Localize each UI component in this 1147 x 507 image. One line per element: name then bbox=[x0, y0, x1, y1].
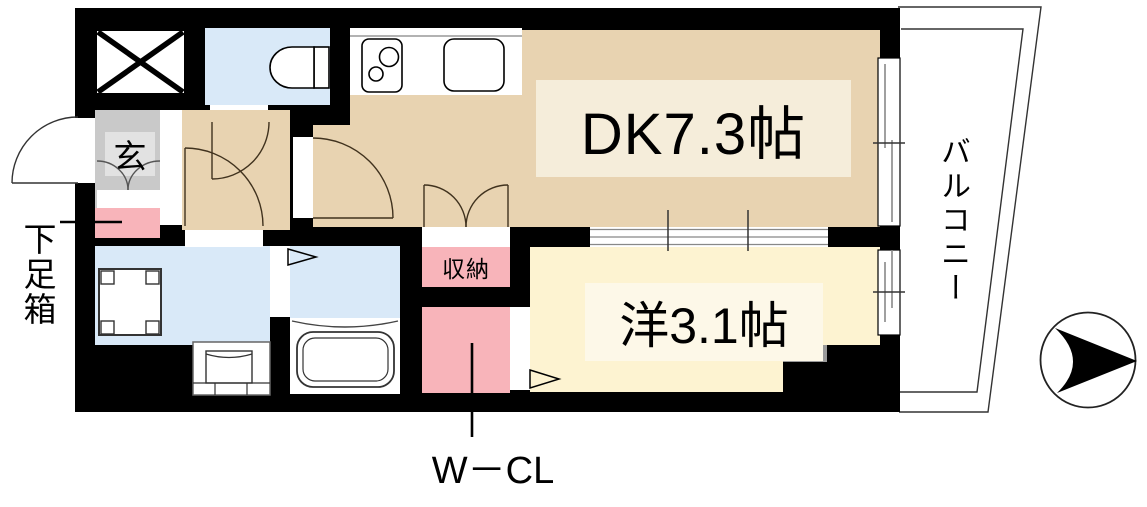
washing-machine-icon bbox=[99, 269, 161, 335]
bathroom-door-opening bbox=[270, 246, 290, 317]
hallway-floor bbox=[182, 110, 290, 230]
floor-plan-drawing bbox=[0, 0, 1147, 507]
dk-door-opening bbox=[293, 137, 313, 218]
balcony bbox=[898, 7, 1041, 412]
entry-door-opening bbox=[75, 118, 95, 183]
entrance-inner bbox=[105, 132, 155, 176]
toilet-icon bbox=[270, 47, 329, 88]
entry-door bbox=[12, 117, 95, 183]
dk-label-bg bbox=[536, 80, 851, 177]
western-balcony-window bbox=[873, 250, 905, 335]
entrance-step bbox=[97, 190, 160, 208]
kitchen-stove-icon bbox=[362, 39, 402, 92]
balcony-outer-edge bbox=[898, 7, 1041, 412]
vanity-basin-icon bbox=[193, 342, 270, 395]
entrance-frame bbox=[160, 110, 182, 225]
dk-balcony-window bbox=[873, 58, 905, 226]
kitchen-counter bbox=[350, 28, 522, 95]
floor-plan: DK7.3帖 洋3.1帖 玄 収納 W－CL バルコニー 下足箱 bbox=[0, 0, 1147, 507]
kitchen-sink-icon bbox=[444, 39, 504, 91]
hall-washroom-opening bbox=[185, 230, 263, 247]
western-label-bg bbox=[585, 283, 823, 361]
western-room bbox=[530, 247, 880, 392]
north-arrow-icon bbox=[1041, 313, 1138, 408]
entrance-area bbox=[95, 110, 182, 225]
storage-door-opening bbox=[422, 227, 510, 247]
wcl-door-opening bbox=[510, 307, 530, 390]
elevator-shaft bbox=[96, 30, 185, 94]
balcony-inner-edge bbox=[900, 29, 1023, 392]
walk-in-closet bbox=[422, 307, 530, 437]
